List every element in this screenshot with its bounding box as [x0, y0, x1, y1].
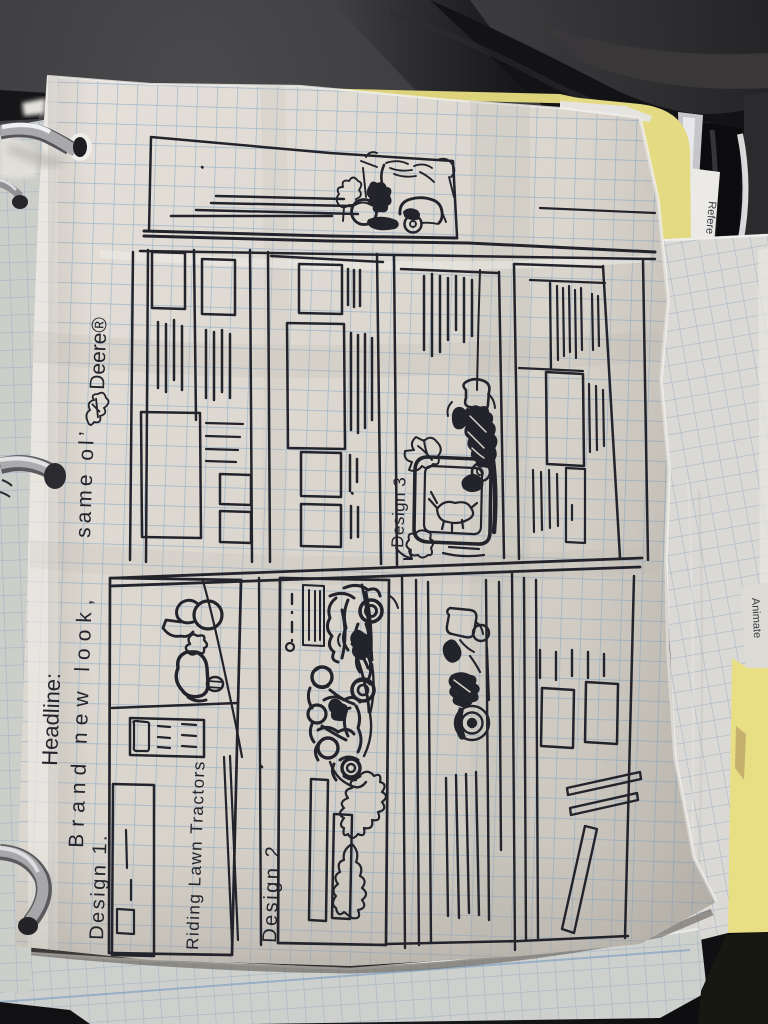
svg-text:Design 3: Design 3 — [388, 476, 409, 548]
svg-text:Animate: Animate — [749, 598, 763, 639]
svg-text:Design 1.: Design 1. — [86, 832, 112, 940]
svg-text:Design 2: Design 2 — [259, 844, 284, 944]
svg-text:Headline:: Headline: — [37, 672, 65, 766]
svg-text:same ol’: same ol’ — [72, 427, 99, 538]
svg-text:Deere®: Deere® — [86, 316, 112, 390]
